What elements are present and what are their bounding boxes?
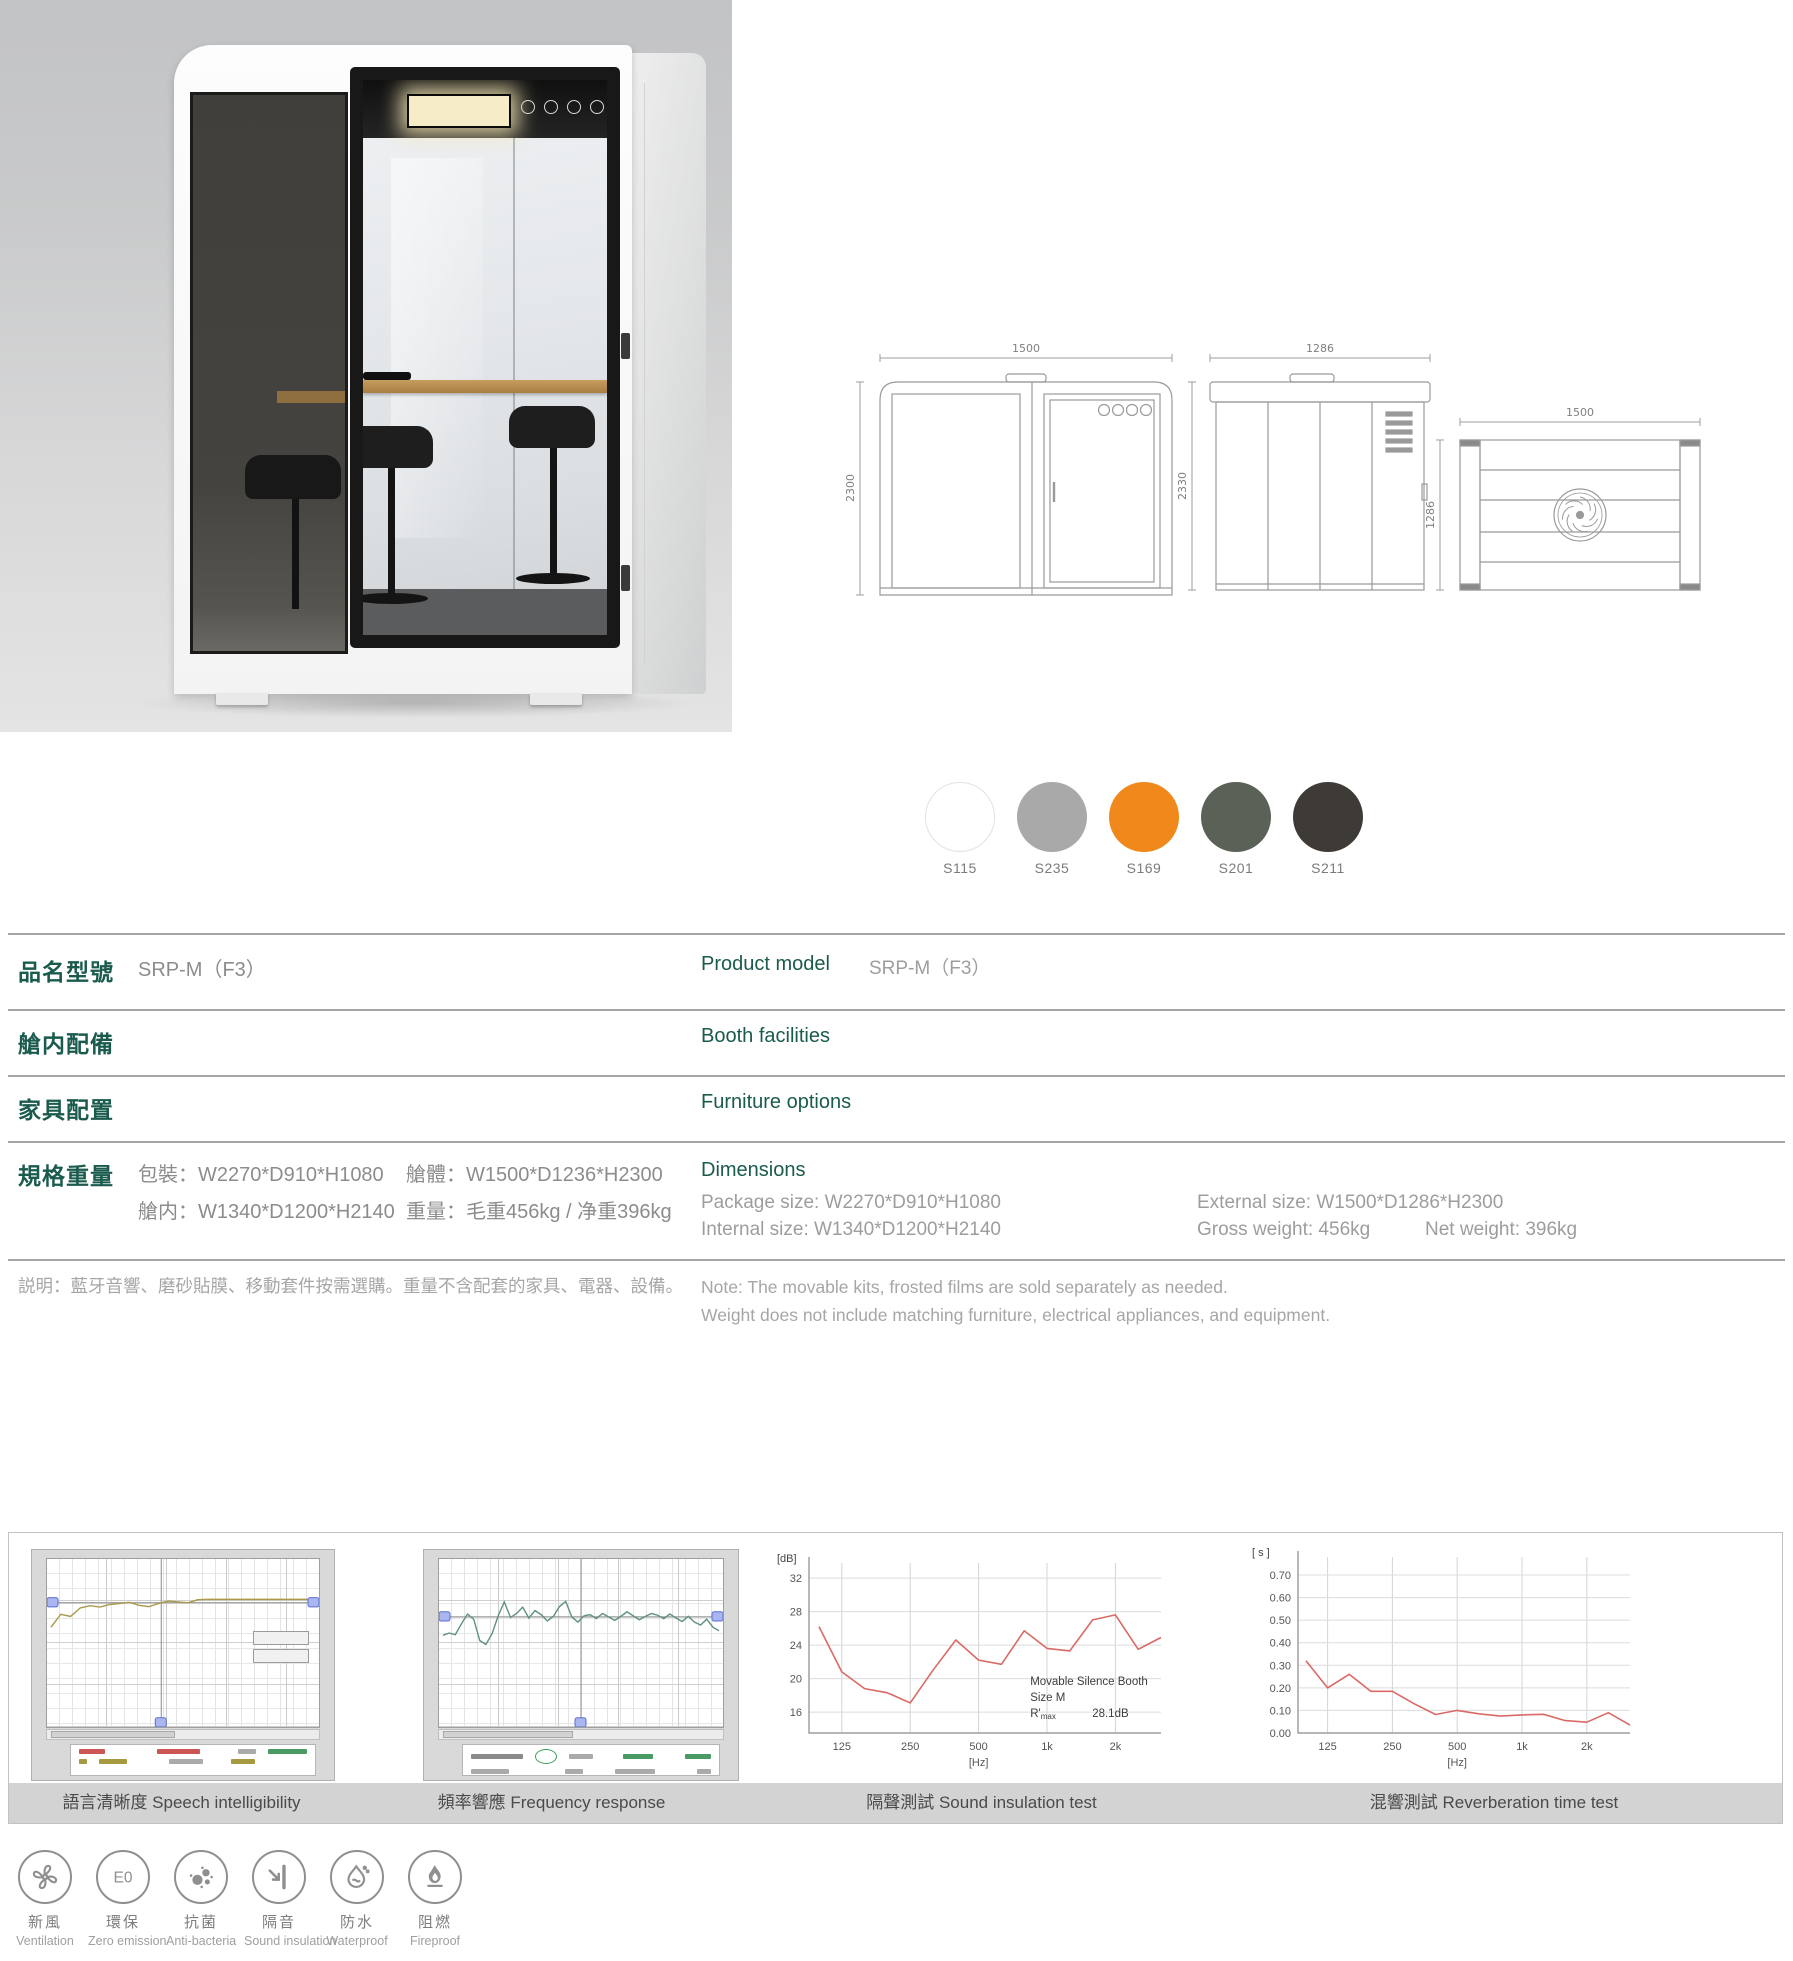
product-spec-sheet: 1500 2300 1286 2330 [0,0,1793,1961]
booth-desk-bar [363,380,607,393]
swatch-code: S211 [1288,860,1368,876]
external-size-en: External size: W1500*D1286*H2300 [1197,1189,1503,1216]
svg-text:500: 500 [1448,1741,1466,1753]
badge-label-en: Ventilation [10,1934,80,1948]
booth-desk-bar-segment [277,391,345,403]
svg-text:R'max: R'max [1030,1708,1056,1721]
facilities-list-zh [138,1025,701,1059]
product-photo [0,0,732,732]
control-icon [590,100,604,114]
spec-row-model: 品名型號 SRP-M（F3） Product model SRP-M（F3） [8,933,1785,1009]
model-value-en: SRP-M（F3） [869,953,1785,987]
svg-text:250: 250 [1383,1741,1401,1753]
badge-label-zh: 隔音 [244,1911,314,1932]
swatch-color-circle [925,782,995,852]
door-handle [363,372,411,380]
internal-size-zh: 艙内：W1340*D1200*H2140 [138,1194,406,1231]
svg-text:0.00: 0.00 [1270,1728,1291,1740]
facilities-list-en [869,1025,1785,1059]
frequency-plot-area [438,1558,724,1728]
svg-text:250: 250 [901,1741,919,1753]
booth-control-icons [521,100,604,114]
swatch-color-circle [1109,782,1179,852]
swatch-code: S169 [1104,860,1184,876]
booth-front-face [174,45,632,694]
svg-text:2k: 2k [1581,1741,1593,1753]
internal-size-en: Internal size: W1340*D1200*H2140 [701,1216,1197,1243]
badge-label-zh: 新風 [10,1911,80,1932]
swatch-code: S115 [920,860,1000,876]
feature-badges: 新風 Ventilation 環保 Zero emission 抗菌 Anti-… [10,1850,470,1948]
chart-caption-band: 語言清晰度 Speech intelligibility 頻率響應 Freque… [9,1783,1782,1823]
package-size-en: Package size: W2270*D910*H1080 [701,1189,1197,1216]
note-zh: 説明：藍牙音響、磨砂貼膜、移動套件按需選購。重量不含配套的家具、電器、設備。 [18,1273,701,1329]
bar-stool [350,426,435,604]
swatch-color-circle [1017,782,1087,852]
svg-text:Movable Silence Booth: Movable Silence Booth [1030,1676,1148,1688]
chart-sound-insulation: 16202428321252505001k2k[dB][Hz]Movable S… [769,1547,1169,1779]
booth-stool-silhouette [245,455,345,625]
top-depth-dimension: 1286 [1424,501,1437,529]
spec-row-dimensions: 規格重量 包裝：W2270*D910*H1080 艙體：W1500*D1236*… [8,1141,1785,1259]
furniture-list-en [869,1091,1785,1125]
bar-stool [509,406,597,584]
plot-scrollbar [438,1729,724,1740]
swatch-code: S235 [1012,860,1092,876]
waterproof-icon [330,1850,384,1904]
badge-insulation: 隔音 Sound insulation [244,1850,314,1948]
svg-text:[dB]: [dB] [777,1553,797,1565]
acoustic-test-charts: 16202428321252505001k2k[dB][Hz]Movable S… [8,1532,1783,1824]
badge-fireproof: 阻燃 Fireproof [400,1850,470,1948]
svg-text:Size M: Size M [1030,1692,1065,1704]
badge-waterproof: 防水 Waterproof [322,1850,392,1948]
badge-label-zh: 防水 [322,1911,392,1932]
facilities-label-zh: 艙内配備 [18,1025,138,1059]
color-swatch: S169 [1104,782,1184,876]
svg-text:[Hz]: [Hz] [969,1757,989,1769]
booth-foot [530,693,582,705]
front-height-dimension: 2300 [844,474,857,502]
front-width-dimension: 1500 [1012,342,1040,355]
svg-text:24: 24 [790,1640,802,1652]
gross-weight-en: Gross weight: 456kg [1197,1216,1425,1243]
furniture-label-zh: 家具配置 [18,1091,138,1125]
side-height-dimension: 2330 [1176,472,1189,500]
swatch-color-circle [1293,782,1363,852]
door-hinge [621,565,630,591]
badge-fan: 新風 Ventilation [10,1850,80,1948]
speech-plot-area [46,1558,320,1728]
spec-table: 品名型號 SRP-M（F3） Product model SRP-M（F3） 艙… [8,933,1785,1359]
booth-open-door-acoustic-panel [190,92,348,654]
caption-speech-intelligibility: 語言清晰度 Speech intelligibility [9,1783,354,1823]
dimension-drawings: 1500 2300 1286 2330 [734,270,1793,630]
svg-text:32: 32 [790,1573,802,1585]
plot-scrollbar [46,1729,320,1740]
badge-label-en: Zero emission [88,1934,158,1948]
svg-text:0.60: 0.60 [1270,1593,1291,1605]
swatch-code: S201 [1196,860,1276,876]
badge-label-zh: 環保 [88,1911,158,1932]
chart-reverberation-time: 0.000.100.200.300.400.500.600.7012525050… [1244,1537,1689,1785]
control-icon [567,100,581,114]
caption-sound-insulation: 隔聲測試 Sound insulation test [749,1783,1214,1823]
badge-label-zh: 阻燃 [400,1911,470,1932]
svg-text:500: 500 [969,1741,987,1753]
control-icon [544,100,558,114]
color-options: S115 S235 S169 S201 S211 [920,782,1368,876]
spec-row-facilities: 艙内配備 Booth facilities [8,1009,1785,1075]
booth-side-face [626,53,706,694]
caption-reverberation-time: 混響測試 Reverberation time test [1214,1783,1774,1823]
front-view-drawing [880,374,1172,595]
svg-text:20: 20 [790,1674,802,1686]
side-width-dimension: 1286 [1306,342,1334,355]
spec-row-note: 説明：藍牙音響、磨砂貼膜、移動套件按需選購。重量不含配套的家具、電器、設備。 N… [8,1259,1785,1359]
svg-text:125: 125 [1318,1741,1336,1753]
fireproof-icon [408,1850,462,1904]
weight-zh: 重量：毛重456kg / 净重396kg [406,1194,672,1231]
svg-text:1k: 1k [1516,1741,1528,1753]
model-label-en: Product model [701,953,869,987]
svg-text:0.50: 0.50 [1270,1615,1291,1627]
booth-foot [216,693,268,705]
svg-text:0.70: 0.70 [1270,1570,1291,1582]
svg-text:125: 125 [833,1741,851,1753]
badge-e0: 環保 Zero emission [88,1850,158,1948]
svg-text:[Hz]: [Hz] [1447,1757,1467,1769]
svg-text:[ s ]: [ s ] [1252,1547,1270,1559]
top-view-drawing [1460,440,1700,590]
badge-label-en: Sound insulation [244,1934,314,1948]
fan-icon [1554,489,1606,541]
side-view-drawing [1210,374,1430,590]
model-label-zh: 品名型號 [18,953,138,987]
dimensions-values-en: Dimensions Package size: W2270*D910*H108… [701,1157,1785,1243]
dimensions-label-zh: 規格重量 [18,1157,138,1243]
net-weight-en: Net weight: 396kg [1425,1216,1577,1243]
svg-text:0.40: 0.40 [1270,1638,1291,1650]
badge-label-en: Anti-bacteria [166,1934,236,1948]
color-swatch: S115 [920,782,1000,876]
control-icon [521,100,535,114]
svg-text:28.1dB: 28.1dB [1092,1708,1129,1720]
package-size-zh: 包裝：W2270*D910*H1080 [138,1157,406,1194]
model-value-zh: SRP-M（F3） [138,953,701,987]
svg-text:0.20: 0.20 [1270,1683,1291,1695]
badge-label-zh: 抗菌 [166,1911,236,1932]
furniture-list-zh [138,1091,701,1125]
svg-text:28: 28 [790,1607,802,1619]
frequency-curve [439,1559,723,1727]
booth-render [174,45,706,700]
color-swatch: S201 [1196,782,1276,876]
facilities-label-en: Booth facilities [701,1025,869,1059]
badge-bacteria: 抗菌 Anti-bacteria [166,1850,236,1948]
plot-legend [70,1744,316,1776]
note-en: Note: The movable kits, frosted films ar… [701,1273,1785,1329]
furniture-label-en: Furniture options [701,1091,869,1125]
dimensions-values-zh: 包裝：W2270*D910*H1080 艙體：W1500*D1236*H2300… [138,1157,701,1243]
color-swatch: S211 [1288,782,1368,876]
note-en-line1: Note: The movable kits, frosted films ar… [701,1273,1785,1301]
front-view-dimension-lines [856,354,1172,595]
chart-speech-intelligibility [31,1549,335,1781]
badge-label-en: Waterproof [322,1934,392,1948]
side-view-dimension-lines [1188,354,1430,590]
caption-frequency-response: 頻率響應 Frequency response [354,1783,749,1823]
svg-text:2k: 2k [1110,1741,1122,1753]
booth-ceiling-light [407,94,511,128]
svg-text:0.10: 0.10 [1270,1705,1291,1717]
note-en-line2: Weight does not include matching furnitu… [701,1301,1785,1329]
fan-icon [18,1850,72,1904]
svg-text:0.30: 0.30 [1270,1660,1291,1672]
color-swatch: S235 [1012,782,1092,876]
chart-frequency-response [423,1549,739,1781]
svg-text:1k: 1k [1041,1741,1053,1753]
spec-row-furniture: 家具配置 Furniture options [8,1075,1785,1141]
booth-glass-door [350,67,620,648]
dimensions-label-en: Dimensions [701,1157,1785,1183]
e0-icon [96,1850,150,1904]
insulation-icon [252,1850,306,1904]
plot-buttons [253,1631,309,1663]
bacteria-icon [174,1850,228,1904]
top-width-dimension: 1500 [1566,406,1594,419]
swatch-color-circle [1201,782,1271,852]
svg-text:16: 16 [790,1707,802,1719]
plot-legend [462,1744,720,1776]
door-hinge [621,333,630,359]
external-size-zh: 艙體：W1500*D1236*H2300 [406,1157,663,1194]
badge-label-en: Fireproof [400,1934,470,1948]
